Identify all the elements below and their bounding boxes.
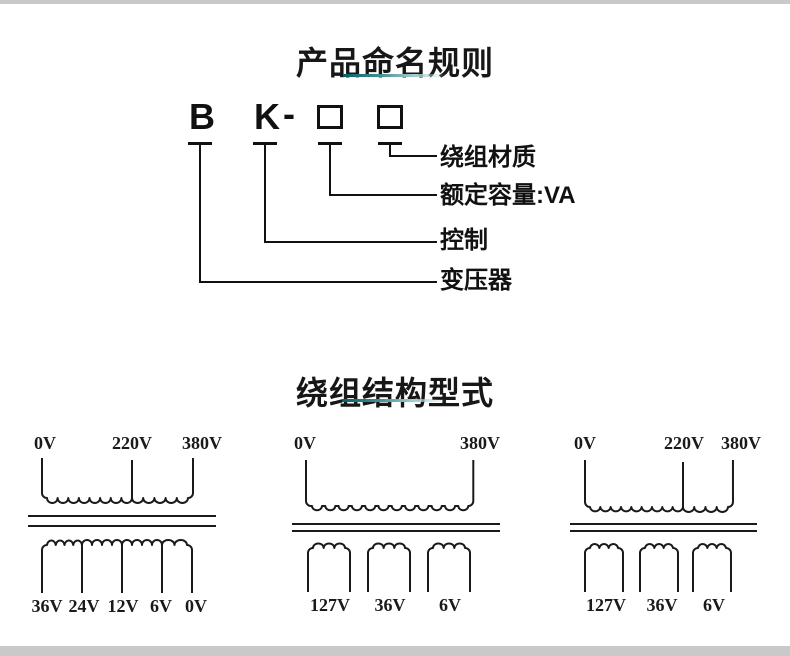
connector-hline-capacity [329, 194, 437, 196]
connector-hline-transformer [199, 281, 437, 283]
primary-tap-label: 380V [460, 433, 500, 453]
code-placeholder-box-1 [317, 105, 343, 129]
connector-vline-capacity [329, 142, 331, 196]
primary-tap-label: 220V [664, 433, 704, 453]
code-letter-b: B [189, 99, 215, 135]
primary-tap-label: 0V [574, 433, 596, 453]
primary-tap-label: 380V [182, 433, 222, 453]
secondary-tap-label: 0V [185, 596, 207, 616]
connector-vline-control [264, 142, 266, 243]
connector-hline-control [264, 241, 437, 243]
secondary-tap-label: 6V [150, 596, 172, 616]
secondary-winding-coil [640, 544, 678, 592]
primary-tap-label: 0V [34, 433, 56, 453]
callout-control: 控制 [440, 228, 488, 254]
secondary-winding-coil [693, 544, 731, 592]
secondary-winding-coil [585, 544, 623, 592]
code-separator: - [283, 96, 295, 132]
secondary-winding-label: 127V [586, 595, 626, 615]
primary-tap-label: 220V [112, 433, 152, 453]
code-placeholder-box-2 [377, 105, 403, 129]
secondary-winding-label: 6V [439, 595, 461, 615]
primary-tap-label: 380V [721, 433, 761, 453]
callout-winding-material: 绕组材质 [440, 145, 536, 171]
secondary-winding-label: 127V [310, 595, 350, 615]
secondary-winding-label: 36V [375, 595, 406, 615]
top-border-bar [0, 0, 790, 4]
secondary-tap-label: 36V [32, 596, 63, 616]
callout-transformer: 变压器 [440, 268, 512, 294]
code-letter-k: K [254, 99, 280, 135]
callout-rated-capacity: 额定容量:VA [440, 183, 576, 209]
transformer-diagram-1: 0V 220V 380V 36V 24V 12V 6V 0V [10, 425, 250, 625]
connector-hline-material [389, 155, 437, 157]
primary-winding-coil [42, 458, 193, 503]
connector-vline-transformer [199, 142, 201, 283]
product-infographic: 产品命名规则 B K - 绕组材质 额定容量:VA 控制 变压器 绕组结构型式 … [0, 0, 790, 656]
bottom-border-bar [0, 646, 790, 656]
secondary-winding-coil [368, 543, 410, 592]
transformer-diagram-3: 0V 220V 380V 127V 36V 6V [550, 425, 790, 625]
primary-tap-label: 0V [294, 433, 316, 453]
secondary-tap-label: 12V [108, 596, 139, 616]
primary-winding-coil [585, 460, 733, 512]
secondary-winding-label: 36V [647, 595, 678, 615]
primary-winding-coil [306, 460, 473, 510]
secondary-winding-coil [42, 540, 192, 593]
secondary-winding-coil [428, 543, 470, 592]
winding-section-title: 绕组结构型式 [0, 376, 790, 410]
title-underline [343, 74, 447, 77]
transformer-diagram-2: 0V 380V 127V 36V 6V [280, 425, 510, 625]
secondary-tap-label: 24V [69, 596, 100, 616]
secondary-winding-label: 6V [703, 595, 725, 615]
title-underline-2 [342, 399, 446, 402]
secondary-winding-coil [308, 543, 350, 592]
